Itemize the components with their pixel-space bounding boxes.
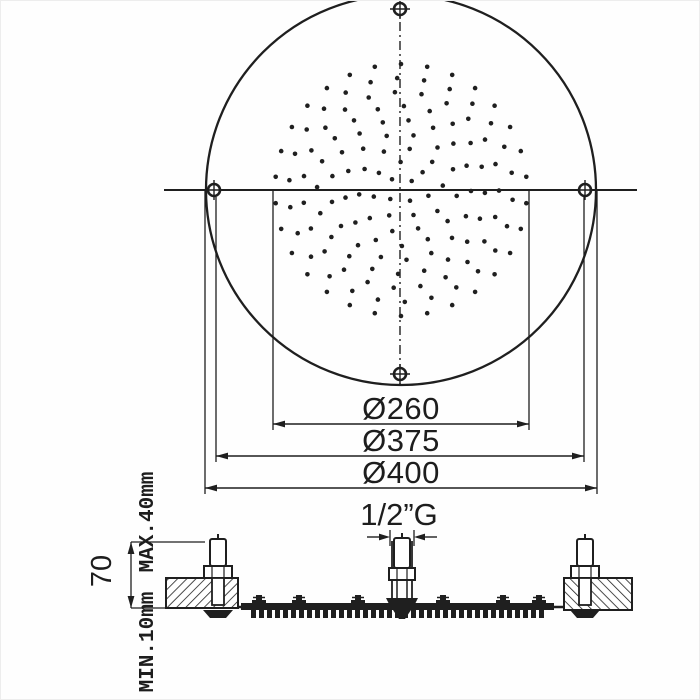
nozzle-dot [309, 226, 314, 231]
nozzle-dot [295, 231, 300, 236]
nozzle-dot [411, 133, 416, 138]
nozzle-dot [396, 272, 401, 277]
nozzle-dot [450, 73, 455, 78]
nozzle-dot [325, 86, 330, 91]
nozzle-dot [524, 201, 529, 206]
nozzle-dot [519, 227, 524, 232]
nozzle-dot [426, 237, 431, 242]
nozzle-dot [393, 90, 398, 95]
nozzle-dot [425, 65, 430, 70]
nozzle-dot [468, 141, 473, 146]
nozzle-dot [454, 285, 459, 290]
nozzle-dot [387, 213, 392, 218]
nozzle-dot [374, 238, 379, 243]
nozzle-dot [451, 167, 456, 172]
plate-screw [292, 595, 306, 605]
nozzle-dot [492, 103, 497, 108]
mounting-screw-right [575, 180, 595, 200]
nozzle-dot [330, 200, 335, 205]
nozzle-dot [368, 80, 373, 85]
nozzle-dot [373, 65, 378, 70]
nozzle-dot [483, 191, 488, 196]
plate-screw [252, 595, 266, 605]
nozzle-dot [366, 95, 371, 100]
nozzle-dot [390, 229, 395, 234]
plate-screw [496, 595, 510, 605]
nozzle-dot [404, 258, 409, 263]
nozzle-dot [340, 150, 345, 155]
nozzle-dot [489, 121, 494, 126]
nozzle-dot [435, 209, 440, 214]
nozzle-dot [370, 267, 375, 272]
nozzle-dot [293, 152, 298, 157]
nozzle-dot [403, 300, 408, 305]
ceiling-panel-left [166, 578, 238, 608]
nozzle-dot [505, 224, 510, 229]
nozzle-dot [509, 171, 514, 176]
nozzle-dot [497, 188, 502, 193]
nozzle-dot [342, 267, 347, 272]
nozzle-dot [502, 145, 507, 150]
nozzle-dot [418, 284, 423, 289]
nozzle-dot [318, 211, 323, 216]
nozzle-dot [508, 251, 513, 256]
nozzle-dot [273, 175, 278, 180]
nozzle-dot [469, 189, 474, 194]
nozzle-dot [287, 178, 292, 183]
nozzle-dot [315, 185, 320, 190]
dim-70-label: 70 [86, 555, 118, 587]
nozzle-dot [466, 117, 471, 122]
nozzle-dot [388, 197, 393, 202]
plate-screw [436, 595, 450, 605]
nozzle-dot [273, 201, 278, 206]
nozzle-dot [377, 171, 382, 176]
nozzle-dot [357, 192, 362, 197]
nozzle-dot [309, 254, 314, 259]
pipe-thread-label: 1/2”G [360, 497, 438, 532]
nozzle-dot [493, 162, 498, 167]
nozzle-dot [464, 214, 469, 219]
nozzle-dot [329, 235, 334, 240]
nozzle-dot [419, 92, 424, 97]
head-outline-circle [206, 1, 596, 385]
nozzle-dot [361, 146, 366, 151]
nozzle-dot [339, 224, 344, 229]
nozzle-dot [327, 274, 332, 279]
nozzle-dot [411, 213, 416, 218]
plate-screw [532, 595, 546, 605]
drawing-svg: Ø260 Ø375 Ø400 1/2”G [1, 1, 700, 700]
nozzle-dot [356, 243, 361, 248]
nozzle-dot [279, 149, 284, 154]
nozzle-dot [422, 268, 427, 273]
nozzle-dot [427, 109, 432, 114]
nozzle-dot [402, 104, 407, 109]
nozzle-dot [348, 303, 353, 308]
nozzle-dot [368, 216, 373, 221]
nozzle-dot [422, 78, 427, 83]
nozzle-dot [420, 170, 425, 175]
nozzle-dot [473, 86, 478, 91]
nozzle-dot [431, 126, 436, 131]
nozzle-dot [483, 137, 488, 142]
nozzle-dot [357, 131, 362, 136]
nozzle-dot [376, 107, 381, 112]
nozzle-dot [379, 255, 384, 260]
nozzle-dot [470, 101, 475, 106]
nozzle-dot [400, 244, 405, 249]
nozzle-dot [476, 269, 481, 274]
nozzle-dot [323, 125, 328, 130]
nozzle-dot [346, 169, 351, 174]
nozzle-dot [320, 159, 325, 164]
nozzle-dot [444, 101, 449, 106]
nozzle-dot [492, 272, 497, 277]
nozzle-dot [343, 107, 348, 112]
nozzle-dot [288, 205, 293, 210]
nozzle-dot [290, 125, 295, 130]
nozzle-dot [430, 160, 435, 165]
nozzle-dot [305, 103, 310, 108]
nozzle-dot [279, 227, 284, 232]
panel-max-label: MAX.40mm [137, 472, 160, 573]
nozzle-dot [407, 147, 412, 152]
nozzle-dot [450, 122, 455, 127]
nozzle-dot [322, 249, 327, 254]
nozzle-dot [409, 179, 414, 184]
nozzle-dot [482, 239, 487, 244]
dim-260: Ø260 [273, 391, 529, 427]
nozzle-dot [302, 201, 307, 206]
nozzle-dot [322, 106, 327, 111]
nozzle-dot [376, 297, 381, 302]
section-view: 1/2”G [86, 472, 632, 693]
plan-view: Ø260 Ø375 Ø400 [164, 1, 637, 494]
nozzle-dot [398, 160, 403, 165]
nozzle-dot [524, 175, 529, 180]
nozzle-dot [325, 290, 330, 295]
nozzle-dot [493, 215, 498, 220]
nozzle-dot [450, 303, 455, 308]
nozzle-dot [406, 118, 411, 123]
nozzle-dot [352, 118, 357, 123]
nozzle-dot [333, 136, 338, 141]
nozzle-dot [343, 195, 348, 200]
nozzle-dot [519, 149, 524, 154]
nozzle-dot [391, 285, 396, 290]
nozzle-dot [384, 134, 389, 139]
nozzle-dot [493, 248, 498, 253]
dim-400-label: Ø400 [362, 455, 440, 490]
nozzle-dot [304, 127, 309, 132]
nozzle-dot [372, 194, 377, 199]
nozzle-dot [305, 272, 310, 277]
plate-screw [351, 595, 365, 605]
mounting-screw-top [390, 1, 410, 19]
mounting-screw-bottom [390, 364, 410, 384]
nozzle-dot [381, 120, 386, 125]
nozzle-dot [446, 257, 451, 262]
nozzle-dot [464, 163, 469, 168]
nozzle-dot [441, 183, 446, 188]
nozzle-dot [465, 239, 470, 244]
nozzle-dot [429, 296, 434, 301]
ceiling-panel-right [564, 578, 632, 610]
nozzle-dot [426, 194, 431, 199]
technical-drawing-shower-head: Ø260 Ø375 Ø400 1/2”G [0, 0, 700, 700]
panel-min-label: MIN.10mm [137, 592, 160, 693]
nozzle-dot [399, 314, 404, 319]
nozzle-dot [390, 177, 395, 182]
nozzle-dot [473, 290, 478, 295]
nozzle-dot [408, 198, 413, 203]
nozzle-dot [508, 125, 513, 130]
nozzle-dot [478, 216, 483, 221]
nozzle-dot [416, 226, 421, 231]
nozzle-dot [373, 311, 378, 316]
nozzle-dot [445, 219, 450, 224]
nozzle-dot [510, 198, 515, 203]
nozzle-dot [362, 167, 367, 172]
nozzle-dot [465, 260, 470, 265]
dim-375-label: Ø375 [362, 423, 440, 458]
nozzle-dot [425, 311, 430, 316]
dim-260-label: Ø260 [362, 391, 440, 426]
nozzle-dot [450, 236, 455, 241]
nozzle-dot [290, 251, 295, 256]
nozzle-dot [395, 76, 400, 81]
dim-400: Ø400 [205, 455, 597, 491]
nozzle-dot [454, 194, 459, 199]
nozzle-dot [348, 73, 353, 78]
nozzle-dot [343, 90, 348, 95]
nozzle-dot [353, 220, 358, 225]
nozzle-dot [435, 145, 440, 150]
nozzle-dot [429, 251, 434, 256]
nozzle-dot [330, 174, 335, 179]
nozzle-dot [302, 174, 307, 179]
nozzle-dot [350, 289, 355, 294]
nozzle-dot [443, 275, 448, 280]
nozzle-dot [447, 87, 452, 92]
nozzle-dot [479, 165, 484, 170]
nozzle-dot [309, 148, 314, 153]
nozzle-dot [382, 149, 387, 154]
nozzle-dot [451, 141, 456, 146]
nozzle-dot [399, 62, 404, 67]
nozzle-dot [347, 254, 352, 259]
nozzle-dot [365, 280, 370, 285]
